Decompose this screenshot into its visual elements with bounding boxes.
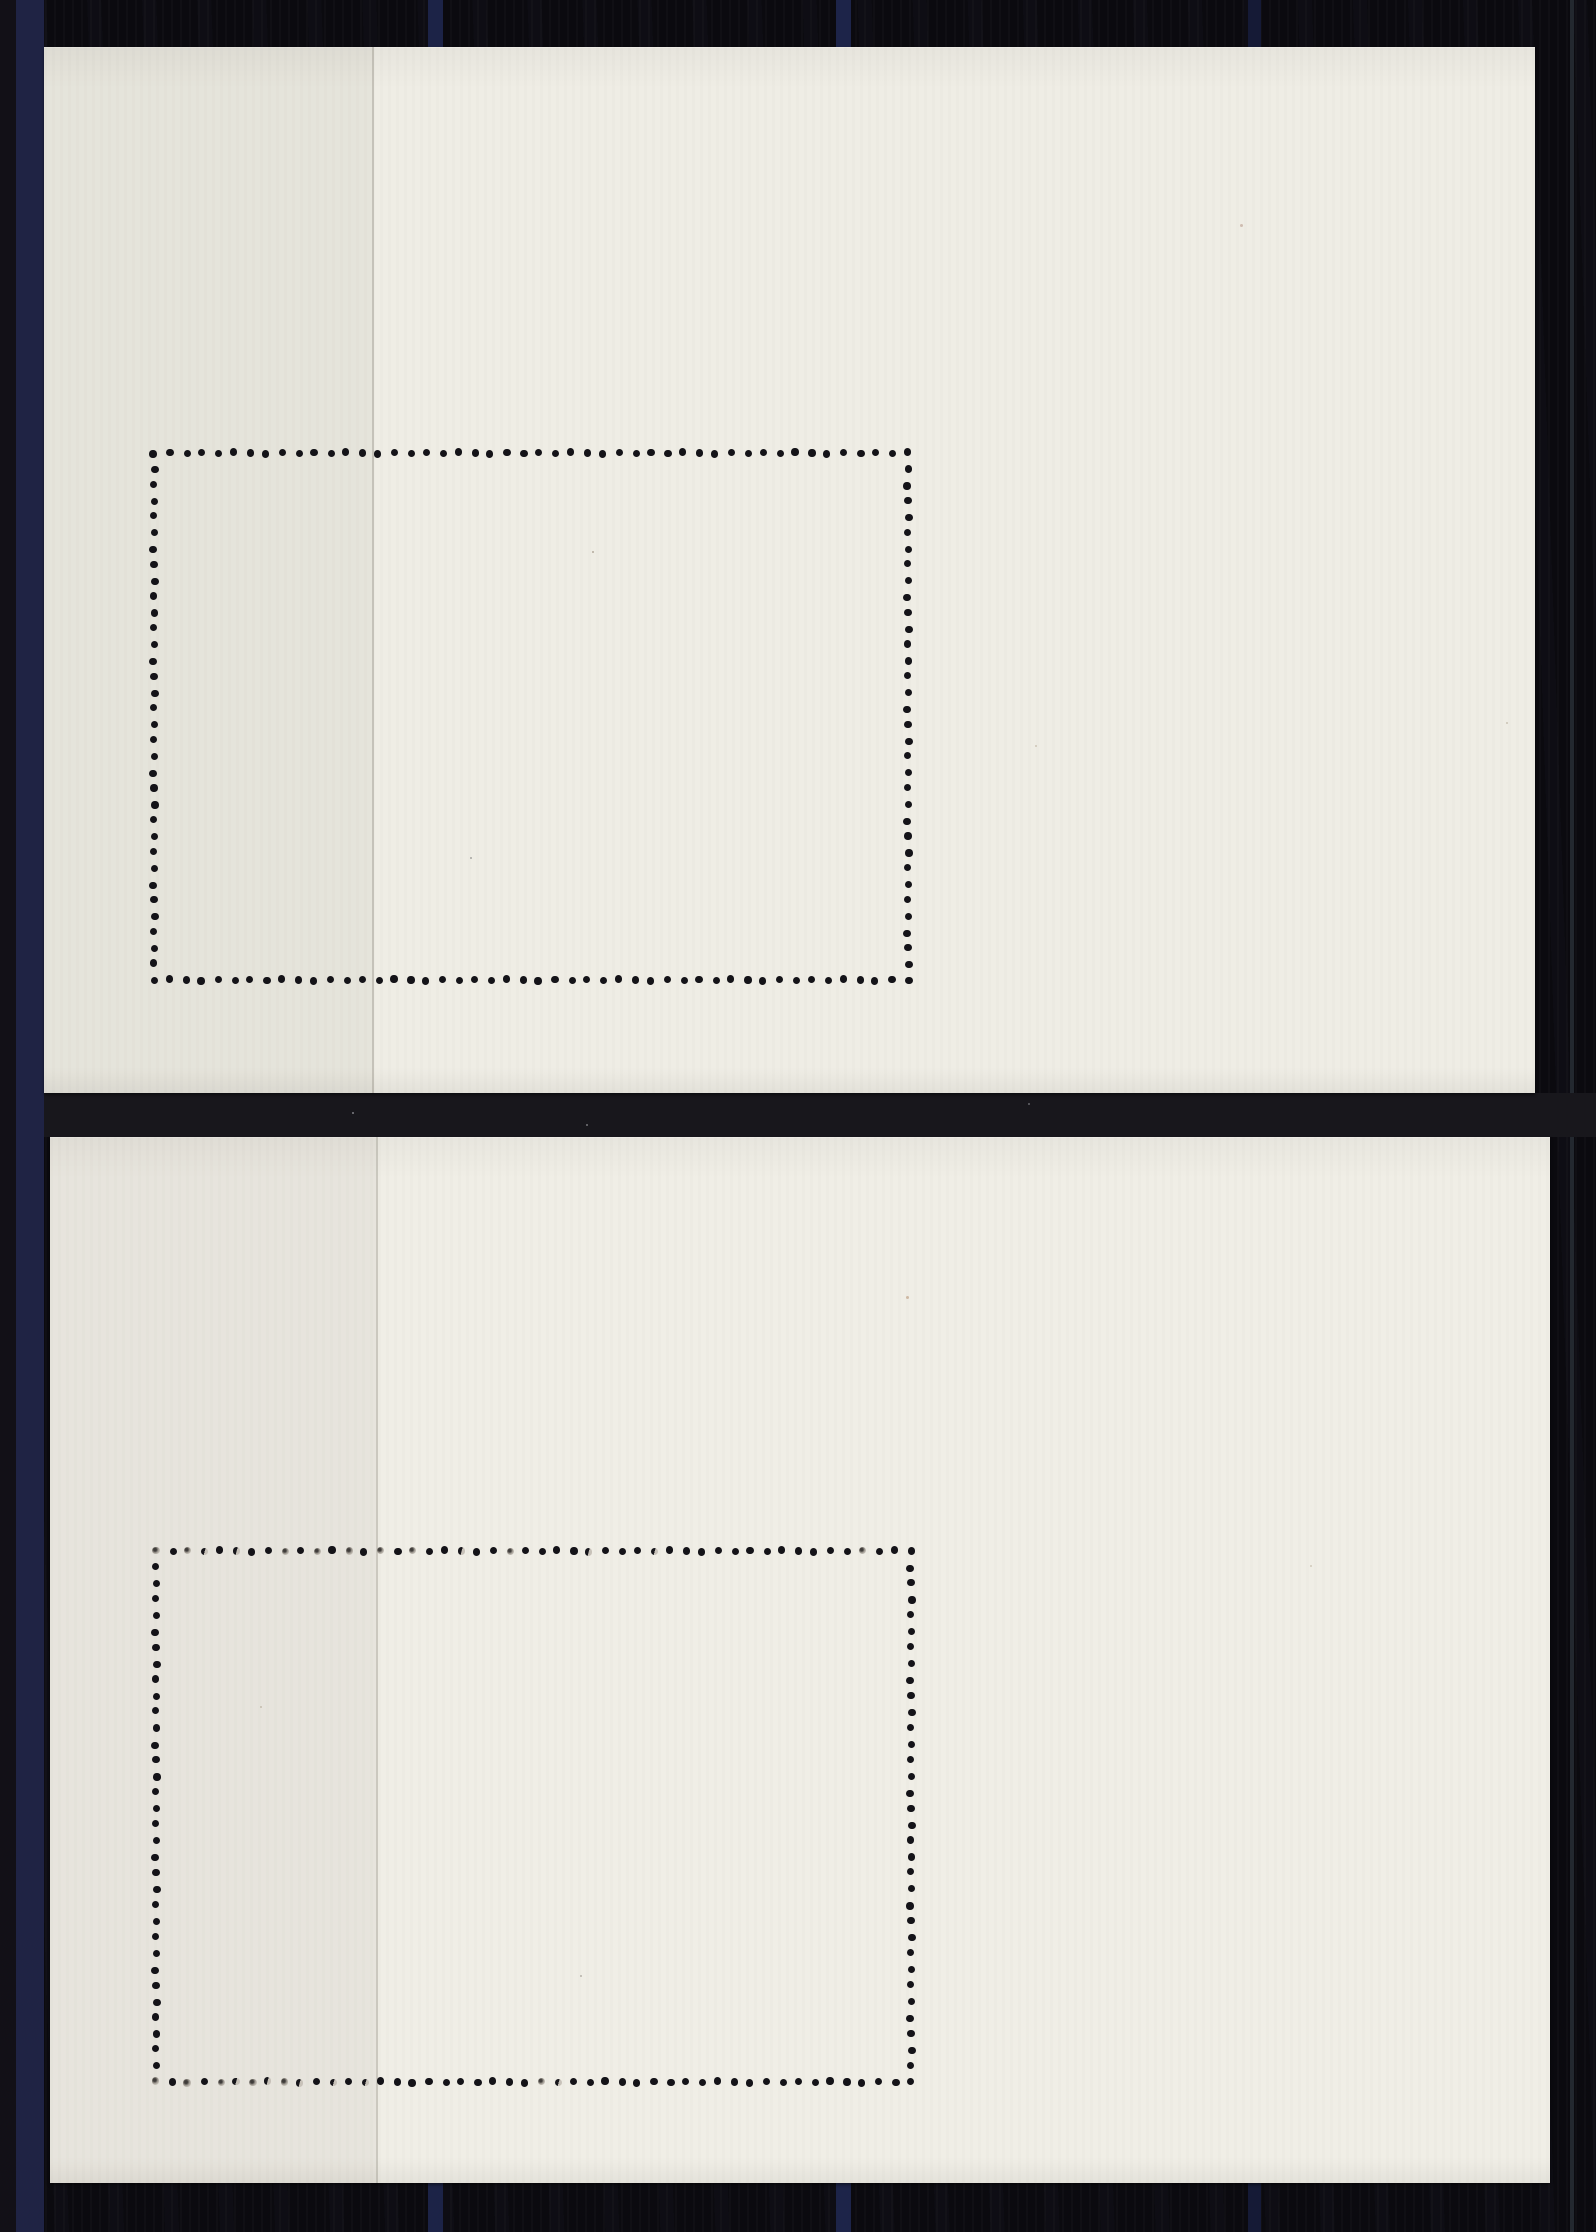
perforation-dot <box>908 1660 915 1667</box>
perforation-dot <box>715 1547 722 1554</box>
perforation-dot <box>619 1548 626 1555</box>
perforation-dot <box>152 1982 159 1989</box>
perforation-dot <box>584 449 591 456</box>
perforation-dot <box>152 1756 159 1763</box>
paper-speck <box>1310 1565 1312 1567</box>
perforation-dot <box>152 1595 159 1602</box>
perforation-dot <box>377 1547 384 1554</box>
perforation-dot <box>908 1773 915 1780</box>
perforation-dot <box>601 2077 608 2084</box>
perforation-dot <box>216 1546 223 1553</box>
perforation-dot <box>152 1788 159 1795</box>
perforation-dot <box>891 1546 898 1553</box>
perforation-dot <box>151 578 158 585</box>
perforation-dot <box>905 738 912 745</box>
perforation-dot <box>905 626 912 633</box>
perforation-dot <box>150 704 157 711</box>
perforation-dot <box>149 882 156 889</box>
perforation-dot <box>153 1724 160 1731</box>
perforation-dot <box>151 1742 158 1749</box>
perforation-dot <box>409 1547 416 1554</box>
perforation-dot <box>903 594 910 601</box>
perforation-rectangle <box>154 453 908 980</box>
perforation-dot <box>426 1548 433 1555</box>
perforation-dot <box>153 1773 160 1780</box>
perforation-dot <box>727 975 734 982</box>
perforation-dot <box>907 1868 914 1875</box>
perforation-dot <box>780 2079 787 2086</box>
perforation-dot <box>374 450 381 457</box>
perforation-dot <box>152 1901 159 1908</box>
perforation-dot <box>149 546 156 553</box>
perforation-dot <box>732 1548 739 1555</box>
perforation-dot <box>151 913 158 920</box>
perforation-dot <box>408 450 415 457</box>
perforation-dot <box>793 977 800 984</box>
perforation-dot <box>827 1547 834 1554</box>
perforation-dot <box>149 658 156 665</box>
perforation-dot <box>197 977 204 984</box>
perforation-dot <box>152 1563 159 1570</box>
perforation-dot <box>455 448 462 455</box>
perforation-dot <box>151 466 158 473</box>
perforation-dot <box>390 975 397 982</box>
perforation-dot <box>695 976 702 983</box>
souvenir-sheet-bottom <box>50 1137 1550 2183</box>
perforation-dot <box>152 1869 159 1876</box>
perforation-dot <box>616 449 623 456</box>
perforation-dot <box>888 976 895 983</box>
perforation-dot <box>791 448 798 455</box>
perforation-dot <box>555 2079 562 2086</box>
perforation-dot <box>683 1547 690 1554</box>
perforation-dot <box>232 2078 239 2085</box>
perforation-dot <box>472 449 479 456</box>
perforation-dot <box>682 2078 689 2085</box>
perforation-dot <box>151 945 158 952</box>
perforation-dot <box>151 865 158 872</box>
perforation-dot <box>808 449 815 456</box>
perforation-dot <box>538 2078 545 2085</box>
perforation-dot <box>408 2079 415 2086</box>
perforation-dot <box>152 1820 159 1827</box>
perforation-dot <box>908 1934 915 1941</box>
perforation-dot <box>711 450 718 457</box>
perforation-dot <box>150 848 157 855</box>
perforation-dot <box>905 657 912 664</box>
perforation-dot <box>763 2078 770 2085</box>
perforation-dot <box>907 2078 914 2085</box>
perforation-dot <box>153 1950 160 1957</box>
perforation-dot <box>150 561 157 568</box>
perforation-dot <box>903 482 910 489</box>
perforation-dot <box>908 1741 915 1748</box>
perforation-dot <box>908 2047 915 2054</box>
perforation-dot <box>151 721 158 728</box>
paper-speck <box>1028 1103 1030 1105</box>
perforation-dot <box>599 450 606 457</box>
perforation-dot <box>153 1693 160 1700</box>
perforation-dot <box>503 975 510 982</box>
perforation-dot <box>666 1546 673 1553</box>
perforation-dot <box>650 2078 657 2085</box>
perforation-dot <box>906 1902 913 1909</box>
perforation-dot <box>619 2078 626 2085</box>
perforation-dot <box>150 816 157 823</box>
perforation-dot <box>908 1709 915 1716</box>
perforation-dot <box>567 448 574 455</box>
perforation-dot <box>153 1612 160 1619</box>
perforation-dot <box>679 448 686 455</box>
perforation-dot <box>615 975 622 982</box>
perforation-dot <box>263 977 270 984</box>
perforation-dot <box>153 2062 160 2069</box>
paper-speck <box>352 1112 354 1114</box>
perforation-dot <box>486 450 493 457</box>
perforation-dot <box>474 2079 481 2086</box>
perforation-dot <box>633 450 640 457</box>
perforation-dot <box>198 449 205 456</box>
perforation-dot <box>359 449 366 456</box>
perforation-dot <box>667 2079 674 2086</box>
perforation-dot <box>905 977 912 984</box>
perforation-dot <box>602 1547 609 1554</box>
perforation-dot <box>264 2077 271 2084</box>
perforation-dot <box>633 2079 640 2086</box>
perforation-dot <box>904 609 911 616</box>
perforation-dot <box>745 450 752 457</box>
perforation-dot <box>905 961 912 968</box>
perforation-dot <box>150 481 157 488</box>
perforation-dot <box>858 2079 865 2086</box>
perforation-dot <box>905 769 912 776</box>
perforation-dot <box>153 1580 160 1587</box>
perforation-dot <box>151 529 158 536</box>
perforation-dot <box>634 1547 641 1554</box>
perforation-dot <box>201 1548 208 1555</box>
perforation-dot <box>908 1547 915 1554</box>
perforation-dot <box>151 498 158 505</box>
perforation-dot <box>907 1724 914 1731</box>
perforation-dot <box>905 577 912 584</box>
perforation-dot <box>215 976 222 983</box>
perforation-dot <box>151 641 158 648</box>
perforation-dot <box>647 977 654 984</box>
perforation-dot <box>150 928 157 935</box>
perforation-dot <box>153 1805 160 1812</box>
perforation-dot <box>150 959 157 966</box>
perforation-dot <box>425 2078 432 2085</box>
perforation-dot <box>422 977 429 984</box>
perforation-dot <box>423 449 430 456</box>
perforation-dot <box>539 1548 546 1555</box>
perforation-dot <box>907 1917 914 1924</box>
perforation-dot <box>570 1547 577 1554</box>
perforation-dot <box>905 913 912 920</box>
paper-speck <box>1240 224 1243 227</box>
perforation-dot <box>906 1790 913 1797</box>
perforation-dot <box>150 673 157 680</box>
perforation-dot <box>150 624 157 631</box>
perforation-dot <box>904 560 911 567</box>
perforation-dot <box>520 450 527 457</box>
perforation-dot <box>152 1547 159 1554</box>
perforation-dot <box>905 881 912 888</box>
perforation-dot <box>826 2077 833 2084</box>
perforation-dot <box>903 706 910 713</box>
perforation-dot <box>904 497 911 504</box>
souvenir-sheet-top <box>44 47 1535 1093</box>
perforation-dot <box>632 976 639 983</box>
perforation-dot <box>681 977 688 984</box>
perforation-dot <box>342 448 349 455</box>
perforation-dot <box>247 449 254 456</box>
perforation-dot <box>296 450 303 457</box>
perforation-dot <box>440 450 447 457</box>
perforation-dot <box>908 1966 915 1973</box>
perforation-dot <box>892 2079 899 2086</box>
perforation-dot <box>857 450 864 457</box>
perforation-dot <box>908 1596 915 1603</box>
perforation-dot <box>731 2078 738 2085</box>
perforation-dot <box>170 1548 177 1555</box>
perforation-dot <box>152 2045 159 2052</box>
perforation-dot <box>647 449 654 456</box>
perforation-dot <box>310 977 317 984</box>
perforation-dot <box>570 2078 577 2085</box>
perforation-rectangle <box>156 1551 911 2082</box>
perforation-dot <box>698 1548 705 1555</box>
perforation-dot <box>907 1836 914 1843</box>
perforation-dot <box>150 896 157 903</box>
perforation-dot <box>184 450 191 457</box>
perforation-dot <box>150 592 157 599</box>
perforation-dot <box>904 832 911 839</box>
perforation-dot <box>249 2079 256 2086</box>
perforation-dot <box>587 2079 594 2086</box>
perforation-dot <box>151 1967 158 1974</box>
perforation-dot <box>262 450 269 457</box>
perforation-dot <box>153 2030 160 2037</box>
perforation-dot <box>377 2077 384 2084</box>
perforation-dot <box>907 1981 914 1988</box>
paper-speck <box>906 1296 909 1299</box>
perforation-dot <box>150 736 157 743</box>
perforation-dot <box>696 449 703 456</box>
perforation-dot <box>746 1547 753 1554</box>
perforation-dot <box>166 449 173 456</box>
perforation-dot <box>908 1885 915 1892</box>
perforation-dot <box>394 1548 401 1555</box>
paper-speck <box>580 1975 582 1977</box>
perforation-dot <box>152 1933 159 1940</box>
perforation-dot <box>521 2079 528 2086</box>
perforation-dot <box>699 2079 706 2086</box>
perforation-dot <box>233 1547 240 1554</box>
perforation-dot <box>904 721 911 728</box>
perforation-dot <box>441 1546 448 1553</box>
perforation-dot <box>152 2013 159 2020</box>
perforation-dot <box>664 450 671 457</box>
perforation-dot <box>808 976 815 983</box>
perforation-dot <box>907 2062 914 2069</box>
perforation-dot <box>522 1547 529 1554</box>
perforation-dot <box>904 784 911 791</box>
perforation-dot <box>812 2079 819 2086</box>
perforation-dot <box>149 450 156 457</box>
perforation-dot <box>907 1692 914 1699</box>
perforation-dot <box>151 1854 158 1861</box>
perforation-dot <box>906 1677 913 1684</box>
perforation-dot <box>152 1707 159 1714</box>
perforation-dot <box>151 833 158 840</box>
perforation-dot <box>746 2079 753 2086</box>
perforation-dot <box>776 976 783 983</box>
perforation-dot <box>149 770 156 777</box>
perforation-dot <box>908 1628 915 1635</box>
perforation-dot <box>651 1548 658 1555</box>
perforation-dot <box>843 2078 850 2085</box>
perforation-dot <box>473 1548 480 1555</box>
perforation-dot <box>583 976 590 983</box>
perforation-dot <box>857 976 864 983</box>
perforation-dot <box>908 1822 915 1829</box>
perforation-dot <box>903 818 910 825</box>
perforation-dot <box>297 1547 304 1554</box>
perforation-dot <box>904 529 911 536</box>
perforation-dot <box>201 2078 208 2085</box>
perforation-dot <box>328 1546 335 1553</box>
perforation-dot <box>295 976 302 983</box>
perforation-dot <box>394 2078 401 2085</box>
perforation-dot <box>183 2079 190 2086</box>
perforation-dot <box>744 976 751 983</box>
perforation-dot <box>585 1548 592 1555</box>
perforation-dot <box>151 801 158 808</box>
perforation-dot <box>152 2077 159 2084</box>
perforation-dot <box>458 1547 465 1554</box>
perforation-dot <box>907 1579 914 1586</box>
perforation-dot <box>904 896 911 903</box>
perforation-dot <box>503 449 510 456</box>
perforation-dot <box>278 975 285 982</box>
perforation-dot <box>281 2078 288 2085</box>
perforation-dot <box>407 976 414 983</box>
paper-speck <box>586 1124 588 1126</box>
perforation-dot <box>230 448 237 455</box>
perforation-dot <box>908 1998 915 2005</box>
perforation-dot <box>471 976 478 983</box>
perforation-dot <box>904 448 911 455</box>
perforation-dot <box>153 1918 160 1925</box>
perforation-dot <box>184 1547 191 1554</box>
perforation-dot <box>265 1547 272 1554</box>
perforation-dot <box>907 1643 914 1650</box>
perforation-dot <box>488 977 495 984</box>
perforation-dot <box>840 975 847 982</box>
perforation-dot <box>777 450 784 457</box>
perforation-dot <box>153 1837 160 1844</box>
perforation-dot <box>520 976 527 983</box>
perforation-dot <box>314 1548 321 1555</box>
perforation-dot <box>907 1949 914 1956</box>
scanned-stamp-album-page <box>0 0 1596 2232</box>
perforation-dot <box>150 512 157 519</box>
perforation-dot <box>439 976 446 983</box>
perforation-dot <box>345 2078 352 2085</box>
perforation-dot <box>778 1546 785 1553</box>
perforation-dot <box>840 449 847 456</box>
perforation-dot <box>215 450 222 457</box>
paper-speck <box>1506 722 1508 724</box>
album-stripe <box>16 0 44 2232</box>
perforation-dot <box>876 1548 883 1555</box>
perforation-dot <box>904 672 911 679</box>
perforation-dot <box>153 1661 160 1668</box>
perforation-dot <box>279 449 286 456</box>
perforation-dot <box>457 2078 464 2085</box>
perforation-dot <box>359 976 366 983</box>
perforation-dot <box>905 689 912 696</box>
perforation-dot <box>844 1548 851 1555</box>
perforation-dot <box>183 976 190 983</box>
paper-speck <box>470 857 472 859</box>
perforation-dot <box>905 465 912 472</box>
perforation-dot <box>456 977 463 984</box>
perforation-dot <box>872 449 879 456</box>
perforation-dot <box>859 1547 866 1554</box>
perforation-dot <box>795 1547 802 1554</box>
perforation-dot <box>904 944 911 951</box>
perforation-dot <box>534 977 541 984</box>
perforation-dot <box>150 784 157 791</box>
perforation-dot <box>906 2015 913 2022</box>
album-stripe <box>0 0 16 2232</box>
paper-speck <box>260 1706 262 1708</box>
perforation-dot <box>664 976 671 983</box>
perforation-dot <box>905 546 912 553</box>
perforation-dot <box>795 2078 802 2085</box>
perforation-dot <box>362 2079 369 2086</box>
perforation-dot <box>905 801 912 808</box>
perforation-dot <box>907 1756 914 1763</box>
perforation-dot <box>905 514 912 521</box>
perforation-dot <box>759 977 766 984</box>
perforation-dot <box>825 977 832 984</box>
perforation-dot <box>443 2079 450 2086</box>
perforation-dot <box>346 1547 353 1554</box>
perforation-dot <box>489 2077 496 2084</box>
perforation-dot <box>296 2079 303 2086</box>
perforation-dot <box>889 450 896 457</box>
perforation-dot <box>151 753 158 760</box>
perforation-dot <box>871 977 878 984</box>
perforation-dot <box>360 1548 367 1555</box>
perforation-dot <box>904 864 911 871</box>
perforation-dot <box>760 449 767 456</box>
perforation-dot <box>166 975 173 982</box>
perforation-dot <box>376 977 383 984</box>
perforation-dot <box>490 1547 497 1554</box>
perforation-dot <box>248 1548 255 1555</box>
perforation-dot <box>906 1565 913 1572</box>
perforation-dot <box>907 1611 914 1618</box>
paper-speck <box>592 551 594 553</box>
perforation-dot <box>907 2030 914 2037</box>
perforation-dot <box>875 2078 882 2085</box>
perforation-dot <box>904 640 911 647</box>
perforation-dot <box>152 1644 159 1651</box>
